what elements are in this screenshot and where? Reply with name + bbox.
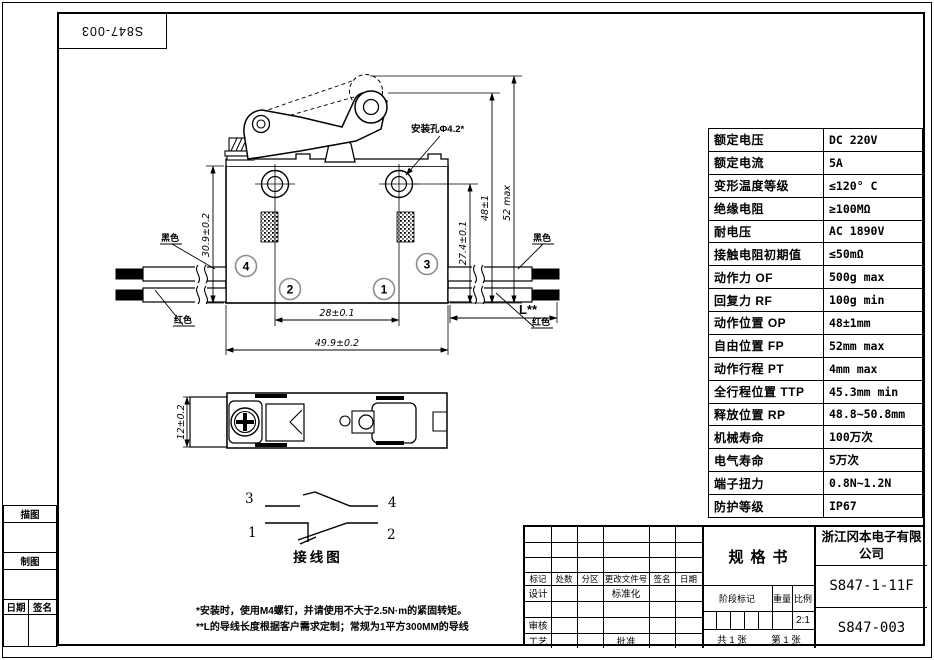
texture-window-left — [261, 212, 278, 242]
spec-label: 回复力 RF — [709, 289, 824, 312]
dim-27-4: 27.4±0.1 — [458, 221, 469, 265]
spec-label: 接触电阻初期值 — [709, 243, 824, 266]
dim-52max: 52 max — [502, 185, 513, 221]
rev-col-mark: 标记 — [525, 572, 551, 585]
rev-col-date: 日期 — [675, 572, 702, 585]
dim-30-9: 30.9±0.2 — [201, 213, 212, 257]
wiring-terminal-2: 2 — [387, 527, 396, 543]
spec-value: 45.3mm min — [824, 380, 923, 403]
spec-sheet-page: S847-003 描图 制图 日期 签名 — [0, 0, 934, 660]
table-row: 绝缘电阻≥100MΩ — [709, 197, 923, 220]
wiring-terminal-3: 3 — [245, 491, 254, 507]
doc-type-title: 规格书 — [702, 527, 814, 585]
spec-value: 48.8~50.8mm — [824, 403, 923, 426]
spec-label: 耐电压 — [709, 220, 824, 243]
spec-label: 额定电压 — [709, 129, 824, 152]
table-row: 动作位置 OP48±1mm — [709, 312, 923, 335]
table-row: 端子扭力0.8N~1.2N — [709, 472, 923, 495]
mount-hole-callout: 安装孔Φ4.2* — [411, 123, 465, 135]
spec-label: 变形温度等级 — [709, 174, 824, 197]
table-row: 额定电压DC 220V — [709, 129, 923, 152]
footnote-2: **L的导线长度根据客户需求定制；常规为1平方300MM的导线 — [196, 620, 476, 636]
spec-value: ≤50mΩ — [824, 243, 923, 266]
rev-col-sign: 签名 — [649, 572, 675, 585]
spec-label: 动作位置 OP — [709, 312, 824, 335]
rev-col-count: 处数 — [551, 572, 577, 585]
part-number: S847-1-11F — [816, 565, 927, 607]
sheets-total: 共 1 张 — [702, 629, 762, 648]
title-block: 标记 处数 分区 更改文件号 签名 日期 设计 标准化 审核 工艺 批准 规格书… — [523, 525, 925, 646]
spec-table: 额定电压DC 220V 额定电流5A 变形温度等级≤120° C 绝缘电阻≥10… — [708, 128, 923, 518]
table-row: 自由位置 FP52mm max — [709, 334, 923, 357]
texture-window-right — [397, 212, 414, 242]
drawing-number: S847-003 — [816, 607, 927, 648]
rev-col-zone: 分区 — [577, 572, 603, 585]
spec-label: 自由位置 FP — [709, 334, 824, 357]
terminal-3: 3 — [424, 258, 431, 272]
review-label: 审核 — [525, 617, 551, 633]
spec-label: 动作力 OF — [709, 266, 824, 289]
spec-label: 释放位置 RP — [709, 403, 824, 426]
company-name: 浙江冈本电子有限公司 — [816, 527, 927, 565]
spec-label: 机械寿命 — [709, 426, 824, 449]
table-row: 电气寿命5万次 — [709, 449, 923, 472]
spec-label: 动作行程 PT — [709, 357, 824, 380]
spec-label: 防护等级 — [709, 495, 824, 518]
spec-value: 5万次 — [824, 449, 923, 472]
footnotes: *安装时，使用M4螺钉，并请使用不大于2.5N·m的紧固转矩。 **L的导线长度… — [196, 604, 476, 636]
wire-length-dim: L** — [519, 302, 538, 317]
wire-black-label-right: 黑色 — [533, 232, 551, 243]
table-row: 回复力 RF100g min — [709, 289, 923, 312]
design-label: 设计 — [525, 585, 551, 601]
dim-28: 28±0.1 — [319, 308, 354, 319]
wires-left — [116, 265, 226, 304]
sheet-number: 第 1 张 — [758, 629, 814, 648]
spec-value: ≤120° C — [824, 174, 923, 197]
front-view: 4 3 2 1 — [116, 75, 559, 356]
spec-value: ≥100MΩ — [824, 197, 923, 220]
spec-value: AC 1890V — [824, 220, 923, 243]
spec-label: 端子扭力 — [709, 472, 824, 495]
spec-label: 额定电流 — [709, 151, 824, 174]
spec-label: 电气寿命 — [709, 449, 824, 472]
table-row: 接触电阻初期值≤50mΩ — [709, 243, 923, 266]
spec-value: 4mm max — [824, 357, 923, 380]
table-row: 机械寿命100万次 — [709, 426, 923, 449]
spec-label: 绝缘电阻 — [709, 197, 824, 220]
spec-label: 全行程位置 TTP — [709, 380, 824, 403]
terminal-4: 4 — [243, 260, 250, 274]
stage-mark-label: 阶段标记 — [702, 585, 772, 611]
wiring-terminal-4: 4 — [388, 495, 397, 511]
process-label: 工艺 — [525, 633, 551, 648]
spec-value: 100万次 — [824, 426, 923, 449]
dim-49-9: 49.9±0.2 — [315, 338, 359, 349]
spec-value: DC 220V — [824, 129, 923, 152]
table-row: 动作行程 PT4mm max — [709, 357, 923, 380]
standardization-label: 标准化 — [603, 585, 649, 601]
weight-label: 重量 — [772, 585, 792, 611]
spec-value: 500g max — [824, 266, 923, 289]
spec-value: 5A — [824, 151, 923, 174]
spec-value: 100g min — [824, 289, 923, 312]
rev-col-docno: 更改文件号 — [603, 572, 649, 585]
scale-label: 比例 — [792, 585, 814, 611]
table-row: 防护等级IP67 — [709, 495, 923, 518]
scale-value: 2:1 — [792, 611, 814, 629]
wire-black-label-left: 黑色 — [161, 232, 179, 243]
table-row: 耐电压AC 1890V — [709, 220, 923, 243]
table-row: 变形温度等级≤120° C — [709, 174, 923, 197]
spec-value: 0.8N~1.2N — [824, 472, 923, 495]
wiring-diagram-title: 接线图 — [293, 549, 343, 565]
table-row: 全行程位置 TTP45.3mm min — [709, 380, 923, 403]
wire-red-label-left: 红色 — [174, 314, 192, 325]
dim-48: 48±1 — [480, 195, 491, 221]
spec-value: 52mm max — [824, 334, 923, 357]
spec-value: 48±1mm — [824, 312, 923, 335]
terminal-1: 1 — [381, 283, 388, 297]
table-row: 动作力 OF500g max — [709, 266, 923, 289]
table-row: 额定电流5A — [709, 151, 923, 174]
wires-right — [448, 265, 559, 304]
spec-value: IP67 — [824, 495, 923, 518]
wiring-diagram: 3 4 1 2 接线图 — [245, 491, 397, 565]
approve-label: 批准 — [603, 633, 649, 648]
dim-12: 12±0.2 — [176, 404, 187, 439]
terminal-2: 2 — [287, 283, 294, 297]
footnote-1: *安装时，使用M4螺钉，并请使用不大于2.5N·m的紧固转矩。 — [196, 604, 476, 620]
table-row: 释放位置 RP48.8~50.8mm — [709, 403, 923, 426]
side-view: 12±0.2 — [176, 393, 447, 448]
wiring-terminal-1: 1 — [248, 525, 257, 541]
